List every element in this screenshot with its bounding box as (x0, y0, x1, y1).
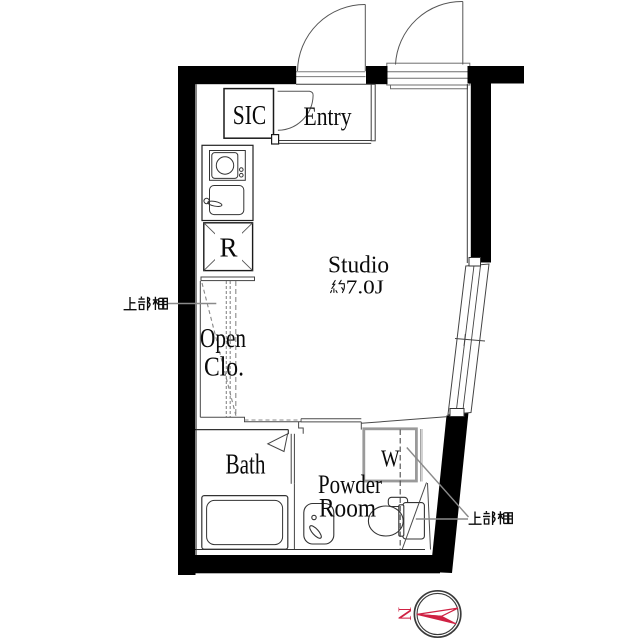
svg-text:Room: Room (319, 493, 376, 522)
svg-text:Bath: Bath (226, 450, 266, 481)
svg-text:W: W (381, 446, 400, 472)
svg-text:Entry: Entry (304, 101, 353, 131)
svg-text:Open: Open (200, 322, 246, 353)
svg-text:N: N (394, 607, 415, 621)
svg-text:Studio: Studio (328, 251, 389, 278)
svg-text:R: R (219, 233, 237, 263)
svg-text:7.0J: 7.0J (346, 276, 384, 298)
svg-text:Clo.: Clo. (204, 351, 244, 382)
svg-text:SIC: SIC (233, 100, 267, 130)
